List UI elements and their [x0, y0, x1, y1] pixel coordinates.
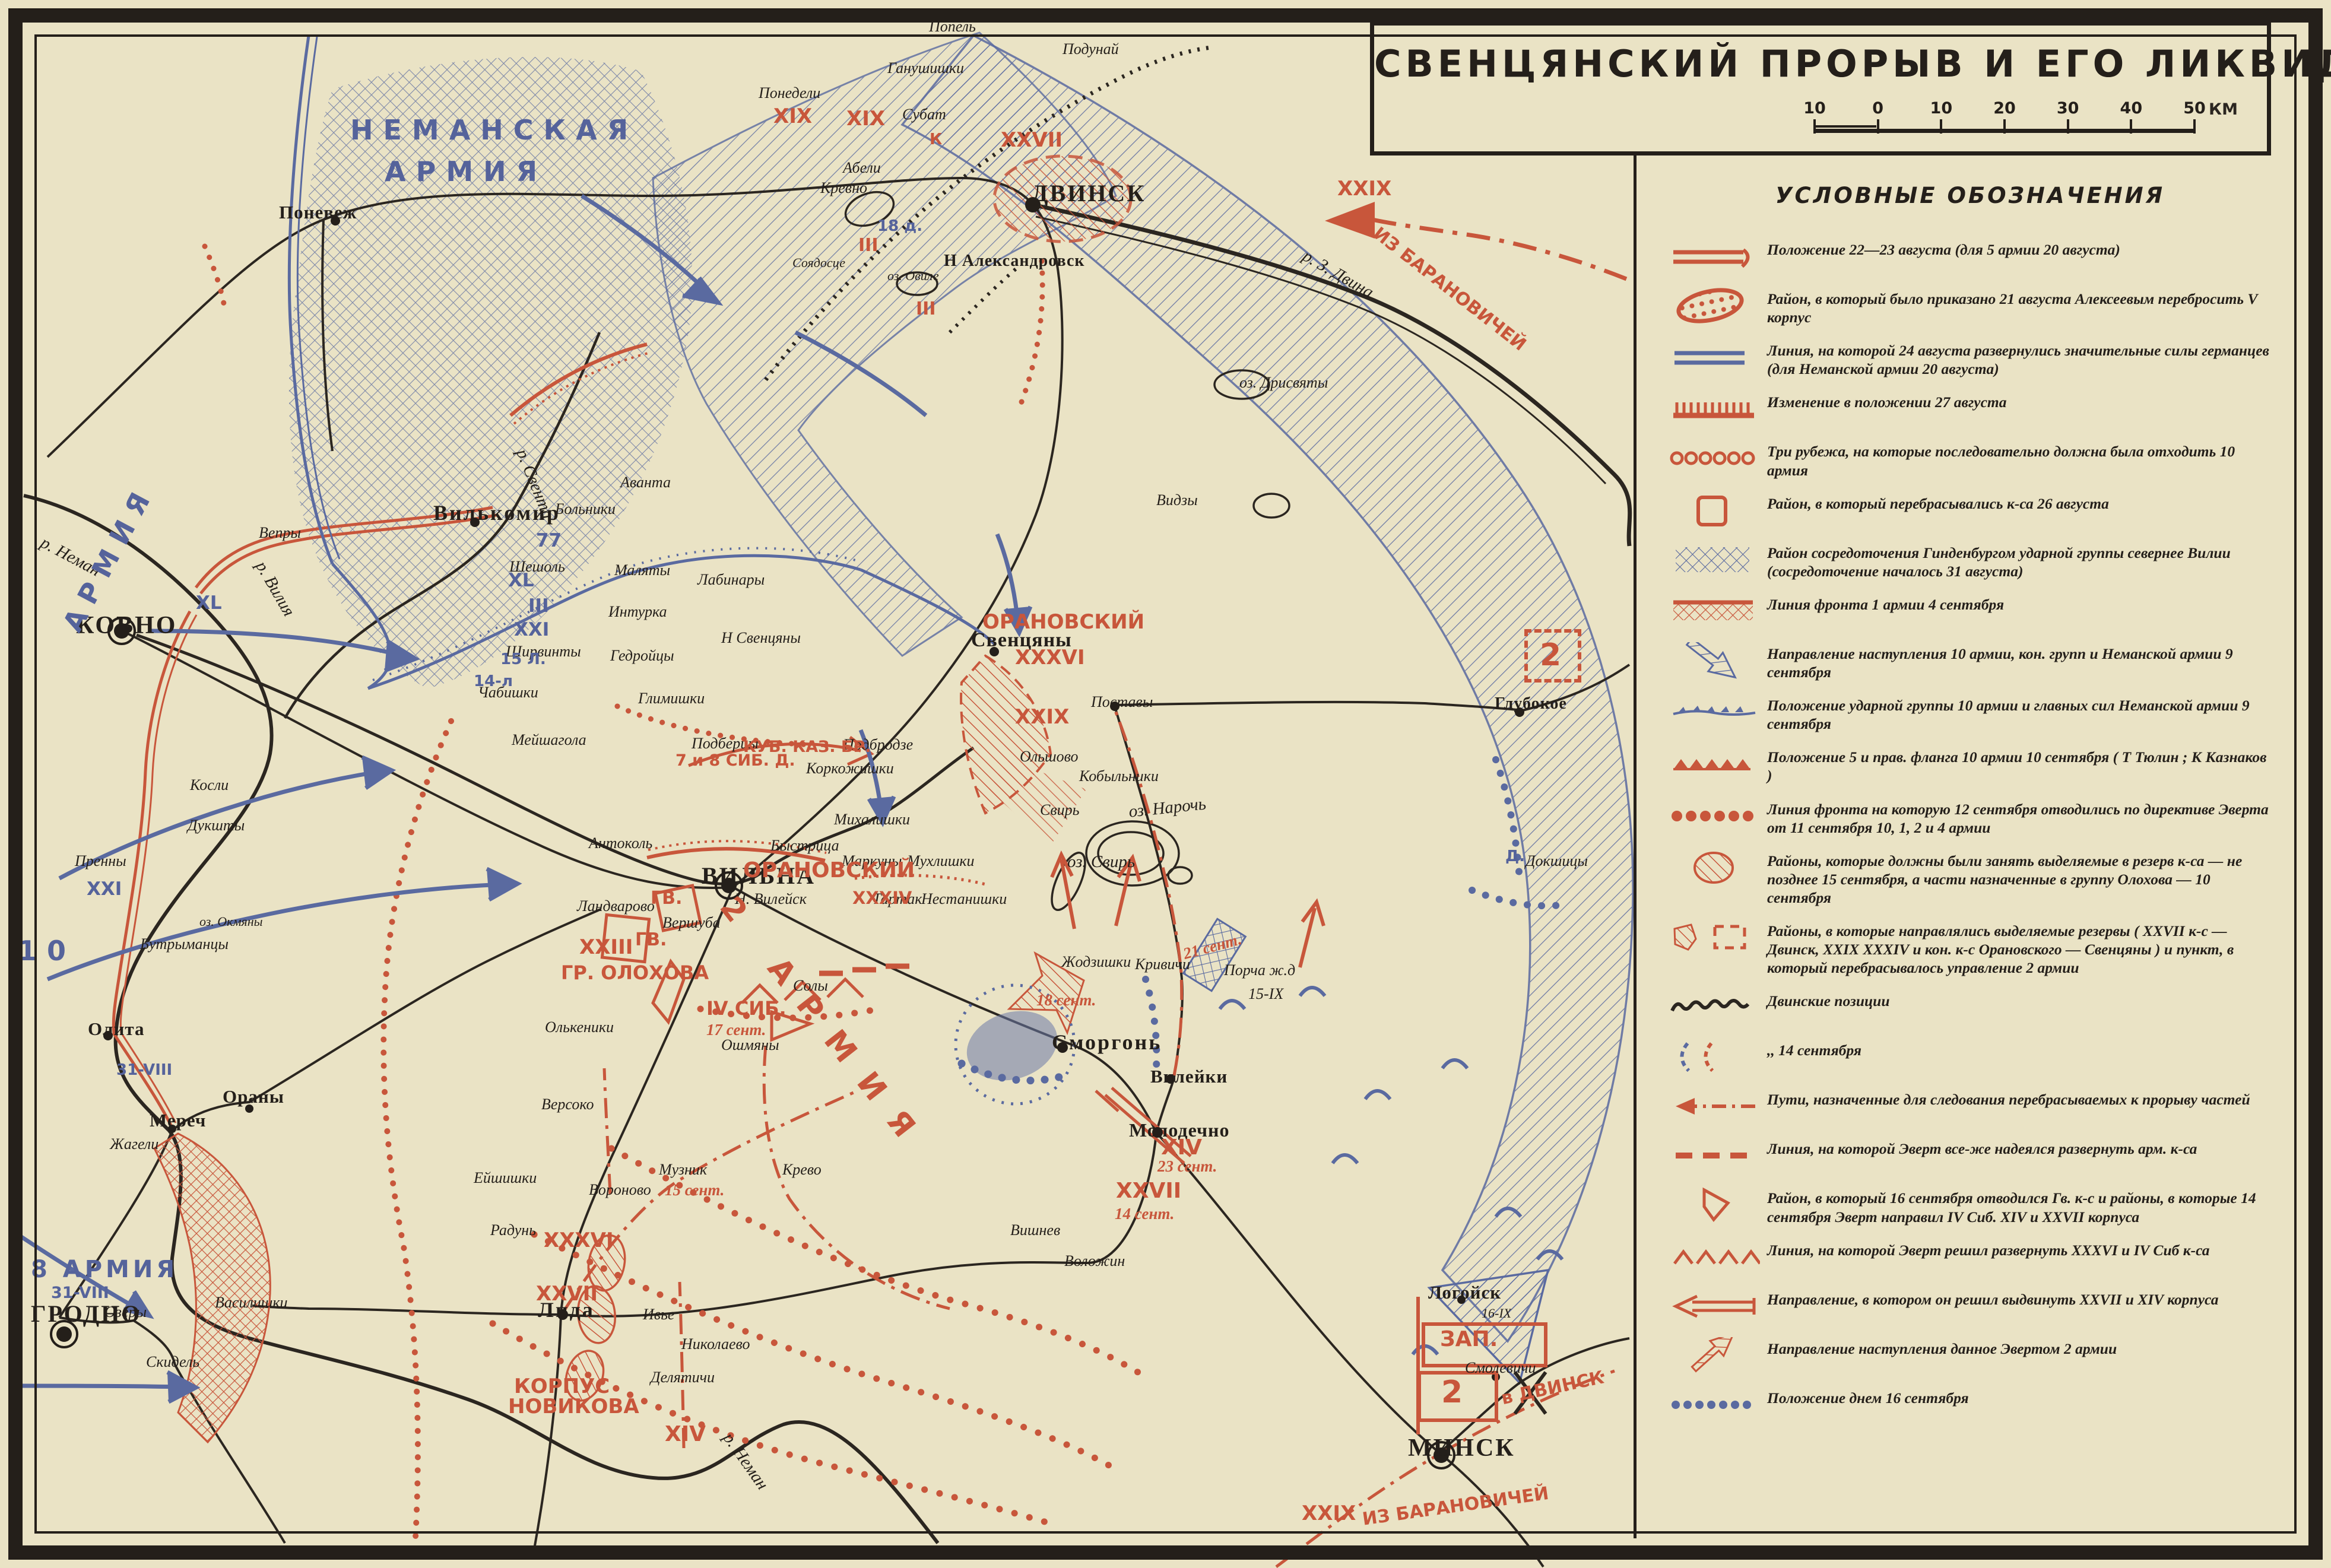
- legend-item-label: Линия, на которой 24 августа развернулис…: [1767, 339, 2273, 378]
- title-box: СВЕНЦЯНСКИЙ ПРОРЫВ И ЕГО ЛИКВИДАЦИЯ 1001…: [1370, 21, 2271, 155]
- red2line-icon: [1667, 238, 1767, 275]
- scale-tick: [2193, 119, 2196, 134]
- legend-item: Направление наступления данное Эвертом 2…: [1667, 1337, 2273, 1374]
- redcarets-icon: [1667, 1239, 1767, 1275]
- legend-item-label: Направление наступления данное Эвертом 2…: [1767, 1337, 2273, 1358]
- reddblarrow-icon: [1667, 1288, 1767, 1325]
- legend-item: Положение днем 16 сентября: [1667, 1386, 2273, 1423]
- legend-item-label: Положение днем 16 сентября: [1767, 1386, 2273, 1407]
- legend-item-label: Район, в который 16 сентября отводился Г…: [1767, 1186, 2273, 1226]
- legend-list: Положение 22—23 августа (для 5 армии 20 …: [1667, 238, 2273, 1423]
- legend-item: Линия, на которой Эверт решил развернуть…: [1667, 1239, 2273, 1275]
- legend-item-label: Линия, на которой Эверт все-же надеялся …: [1767, 1137, 2273, 1158]
- reddots-icon: [1667, 798, 1767, 834]
- legend-item-label: Районы, в которые направлялись выделяемы…: [1767, 919, 2273, 977]
- reddashdotarrow-icon: [1667, 1088, 1767, 1125]
- redhatchsq-icon: [1667, 919, 1767, 956]
- redhatcharrowup-icon: [1667, 1337, 1767, 1374]
- legend-item: Изменение в положении 27 августа: [1667, 391, 2273, 427]
- scale-tick: [1877, 119, 1879, 134]
- legend-item-label: Район сосредоточения Гинденбургом ударно…: [1767, 541, 2273, 580]
- legend-item: Двинские позиции: [1667, 989, 2273, 1026]
- legend-item-label: Положение 5 и прав. фланга 10 армии 10 с…: [1767, 745, 2273, 785]
- red-deployment-lines: [653, 961, 909, 1040]
- legend-item-label: Направление наступления 10 армии, кон. г…: [1767, 642, 2273, 681]
- scale-tick: [2067, 119, 2069, 134]
- legend-item-label: Положение 22—23 августа (для 5 армии 20 …: [1767, 238, 2273, 259]
- red-corps-squares: [602, 885, 700, 962]
- scale-tick: [1940, 119, 1942, 134]
- legend-item-label: Линия фронта на которую 12 сентября отво…: [1767, 798, 2273, 837]
- legend-item-label: Линия фронта 1 армии 4 сентября: [1767, 593, 2273, 614]
- blueteeth-icon: [1667, 694, 1767, 731]
- box-pole: [1416, 1297, 1420, 1434]
- legend-separator: [1634, 155, 1637, 1538]
- legend-item-label: Положение ударной группы 10 армии и глав…: [1767, 694, 2273, 733]
- zap-front-box: [1422, 1322, 1547, 1367]
- bluehatcharrow-icon: [1667, 642, 1767, 679]
- legend-item-label: Три рубежа, на которые последовательно д…: [1767, 440, 2273, 479]
- legend-item: Линия, на которой 24 августа развернулис…: [1667, 339, 2273, 378]
- legend-item: Положение ударной группы 10 армии и глав…: [1667, 694, 2273, 733]
- redtris-icon: [1667, 745, 1767, 782]
- legend-item: Пути, назначенные для следования перебра…: [1667, 1088, 2273, 1125]
- reddashes-icon: [1667, 1137, 1767, 1174]
- scale-tick: [2130, 119, 2132, 134]
- legend-item: Район, в который перебрасывались к-са 26…: [1667, 492, 2273, 529]
- legend-item: Район, в который было приказано 21 авгус…: [1667, 287, 2273, 326]
- german-concentration-area: [289, 57, 692, 688]
- scale-tick-label: 10: [1930, 99, 1953, 118]
- scale-bar: 1001020304050КМ: [1813, 101, 2217, 143]
- redcomb-icon: [1667, 391, 1767, 427]
- legend-item-label: Район, в который перебрасывались к-са 26…: [1767, 492, 2273, 513]
- legend-item: Положение 5 и прав. фланга 10 армии 10 с…: [1667, 745, 2273, 785]
- legend-item: Район сосредоточения Гинденбургом ударно…: [1667, 541, 2273, 580]
- legend-item-label: Линия, на которой Эверт решил развернуть…: [1767, 1239, 2273, 1259]
- legend-item: Район, в который 16 сентября отводился Г…: [1667, 1186, 2273, 1226]
- legend-item: Направление наступления 10 армии, кон. г…: [1667, 642, 2273, 681]
- legend-item: Три рубежа, на которые последовательно д…: [1667, 440, 2273, 479]
- legend-item-label: Направление, в котором он решил выдвинут…: [1767, 1288, 2273, 1309]
- legend-item: Районы, которые должны были занять выдел…: [1667, 849, 2273, 907]
- scale-tick-label: 50: [2183, 99, 2206, 118]
- legend-item-label: Пути, назначенные для следования перебра…: [1767, 1088, 2273, 1109]
- baranovichi-arrow: [1325, 202, 1626, 279]
- scale-tick-label: 0: [1872, 99, 1883, 118]
- legend-item: Линия фронта на которую 12 сентября отво…: [1667, 798, 2273, 837]
- fronts14-icon: [1667, 1039, 1767, 1075]
- bluecross-icon: [1667, 541, 1767, 578]
- redsquare-icon: [1667, 492, 1767, 529]
- scale-tick-label: 30: [2057, 99, 2079, 118]
- army2-dashed-box: [1524, 629, 1581, 683]
- legend-item: Линия, на которой Эверт все-же надеялся …: [1667, 1137, 2273, 1174]
- legend-item: Районы, в которые направлялись выделяемы…: [1667, 919, 2273, 977]
- map-title: СВЕНЦЯНСКИЙ ПРОРЫВ И ЕГО ЛИКВИДАЦИЯ: [1374, 42, 2267, 85]
- scale-unit-label: КМ: [2209, 100, 2238, 119]
- legend-heading: УСЛОВНЫЕ ОБОЗНАЧЕНИЯ: [1667, 183, 2273, 208]
- scale-tick: [2003, 119, 2006, 134]
- legend-item-label: Районы, которые должны были занять выдел…: [1767, 849, 2273, 907]
- legend-item: Направление, в котором он решил выдвинут…: [1667, 1288, 2273, 1325]
- scale-tick: [1813, 119, 1816, 134]
- legend-item: Линия фронта 1 армии 4 сентября: [1667, 593, 2273, 630]
- scale-tick-label: 40: [2120, 99, 2143, 118]
- scale-line-sub: [1813, 125, 1876, 128]
- scale-tick-label: 10: [1803, 99, 1826, 118]
- legend-item-label: Двинские позиции: [1767, 989, 2273, 1010]
- redcrossband-icon: [1667, 593, 1767, 630]
- legend-item-label: Изменение в положении 27 августа: [1767, 391, 2273, 411]
- blue2line-icon: [1667, 339, 1767, 376]
- historical-map: ПопельПодунайГанушишкиПонеделиСубатАбели…: [0, 0, 2331, 1568]
- army2-box: [1417, 1371, 1498, 1422]
- legend-item-label: ,, 14 сентября: [1767, 1039, 2273, 1059]
- blackwavy-icon: [1667, 989, 1767, 1026]
- legend-item: Положение 22—23 августа (для 5 армии 20 …: [1667, 238, 2273, 275]
- legend-item: ,, 14 сентября: [1667, 1039, 2273, 1075]
- legend-item-label: Район, в который было приказано 21 авгус…: [1767, 287, 2273, 326]
- redkite-icon: [1667, 1186, 1767, 1223]
- legend-panel: УСЛОВНЫЕ ОБОЗНАЧЕНИЯ Положение 22—23 авг…: [1637, 155, 2297, 1538]
- bluedots-icon: [1667, 1386, 1767, 1423]
- reddotoval-icon: [1667, 287, 1767, 324]
- scale-tick-label: 20: [1993, 99, 2016, 118]
- redrings-icon: [1667, 440, 1767, 477]
- redhatchoval-icon: [1667, 849, 1767, 886]
